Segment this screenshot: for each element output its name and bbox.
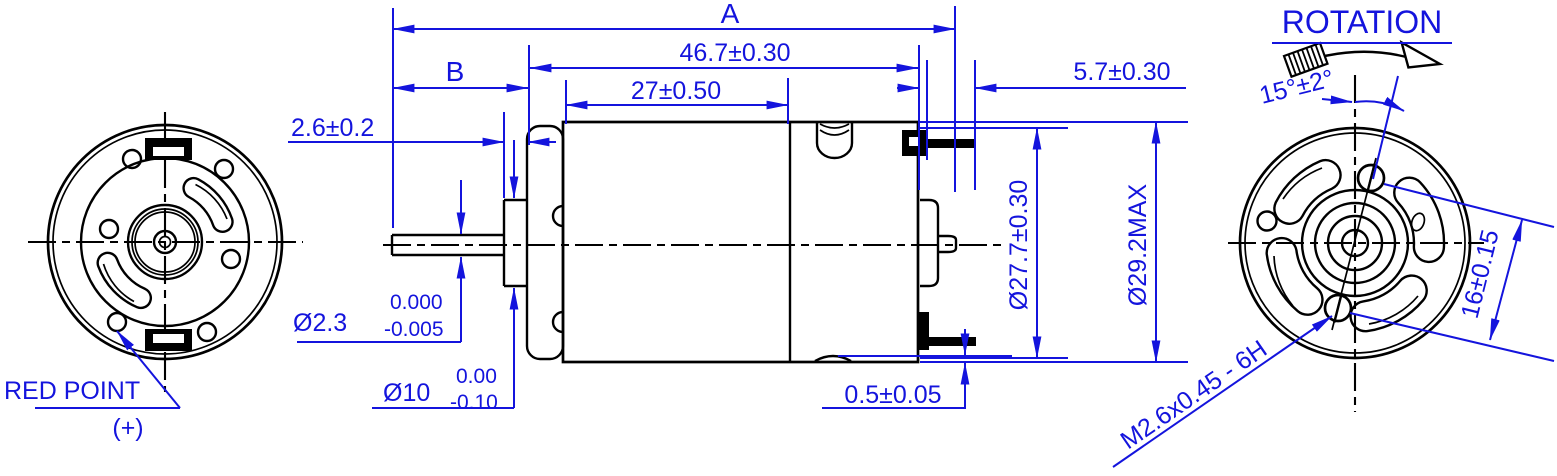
front-vent-slot-upper: [184, 178, 233, 232]
front-bushing: [504, 200, 527, 286]
endcap-vent: [817, 123, 852, 158]
front-hole-5: [108, 313, 126, 331]
dim-case-diameter-label: Ø29.2MAX: [1124, 184, 1152, 307]
dim-case-length: 46.7±0.30: [530, 39, 918, 68]
dim-can-length: 27±0.50: [566, 77, 788, 105]
rear-bearing-boss: [920, 200, 938, 286]
front-hole-3: [100, 220, 118, 238]
dim-endcap-diameter-label: Ø27.7±0.30: [1005, 180, 1033, 310]
dim-shaft-extension-B: B: [393, 56, 528, 88]
terminal-top: [902, 130, 976, 156]
dim-endcap-diameter: Ø27.7±0.30: [1005, 128, 1037, 358]
dim-bushing-tol-upper: 0.00: [456, 365, 497, 388]
dim-screw-spacing-label: 16±0.15: [1456, 227, 1505, 321]
endbell-notch-lower: [553, 312, 563, 332]
rotation-label: ROTATION: [1282, 4, 1443, 40]
dim-terminal-length-label: 5.7±0.30: [1073, 58, 1170, 86]
dim-bushing-protrusion-label: 2.6±0.2: [291, 114, 374, 142]
dim-B-label: B: [446, 56, 465, 87]
front-terminal-bottom: [145, 329, 192, 351]
dim-can-length-label: 27±0.50: [631, 77, 721, 105]
dim-A-label: A: [721, 0, 740, 29]
polarity-label: (+): [112, 414, 143, 442]
rear-hole: [1258, 212, 1277, 231]
dim-shaft-tol-lower: -0.005: [384, 318, 444, 341]
terminal-bottom: [917, 312, 976, 350]
dim-shaft-tol-upper: 0.000: [390, 291, 443, 314]
front-terminal-top: [145, 138, 192, 160]
dim-bushing-diameter-label: Ø10: [383, 379, 430, 407]
dim-case-indent-label: 0.5±0.05: [844, 381, 941, 409]
rotation-title: ROTATION: [1272, 4, 1452, 43]
rear-vent-slot-3-detail: [1274, 256, 1293, 306]
dim-bushing-tol-lower: -0.10: [450, 391, 498, 414]
front-hole-2: [215, 160, 233, 178]
dim-shaft-diameter: Ø2.3 0.000 -0.005: [293, 180, 461, 342]
drawing-canvas: RED POINT (+): [0, 0, 1557, 476]
endbell-notch-upper: [553, 206, 563, 226]
front-view: RED POINT (+): [4, 112, 303, 442]
dim-case-diameter: Ø29.2MAX: [1124, 122, 1156, 362]
dim-terminal-length: 5.7±0.30: [897, 58, 1186, 88]
motor-engineering-drawing: RED POINT (+): [0, 0, 1557, 476]
screw-slot-lower: [1334, 294, 1341, 323]
motor-can: [563, 122, 918, 362]
dim-bushing-protrusion: 2.6±0.2: [288, 114, 556, 142]
side-view: A 46.7±0.30 B 27±0.50 5.7±0.30 2.6±0.2: [288, 0, 1188, 414]
rotation-arrowhead: [1402, 43, 1440, 68]
front-endbell: [527, 126, 563, 359]
front-hole-4: [222, 250, 240, 268]
front-hole-6: [198, 323, 216, 341]
dim-shaft-diameter-label: Ø2.3: [293, 309, 347, 337]
thread-spec-label: M2.6x0.45 - 6H: [1116, 335, 1273, 455]
dim-case-length-label: 46.7±0.30: [679, 39, 790, 67]
rear-vent-slot-1: [1274, 160, 1340, 224]
thread-spec-callout: M2.6x0.45 - 6H: [1113, 316, 1332, 467]
rear-view: ROTATION 15°±2° 16±0.15 M2.6x0.45 - 6H: [1113, 4, 1554, 467]
red-point-label: RED POINT: [4, 377, 140, 405]
dim-overall-length-A: A: [393, 0, 955, 29]
